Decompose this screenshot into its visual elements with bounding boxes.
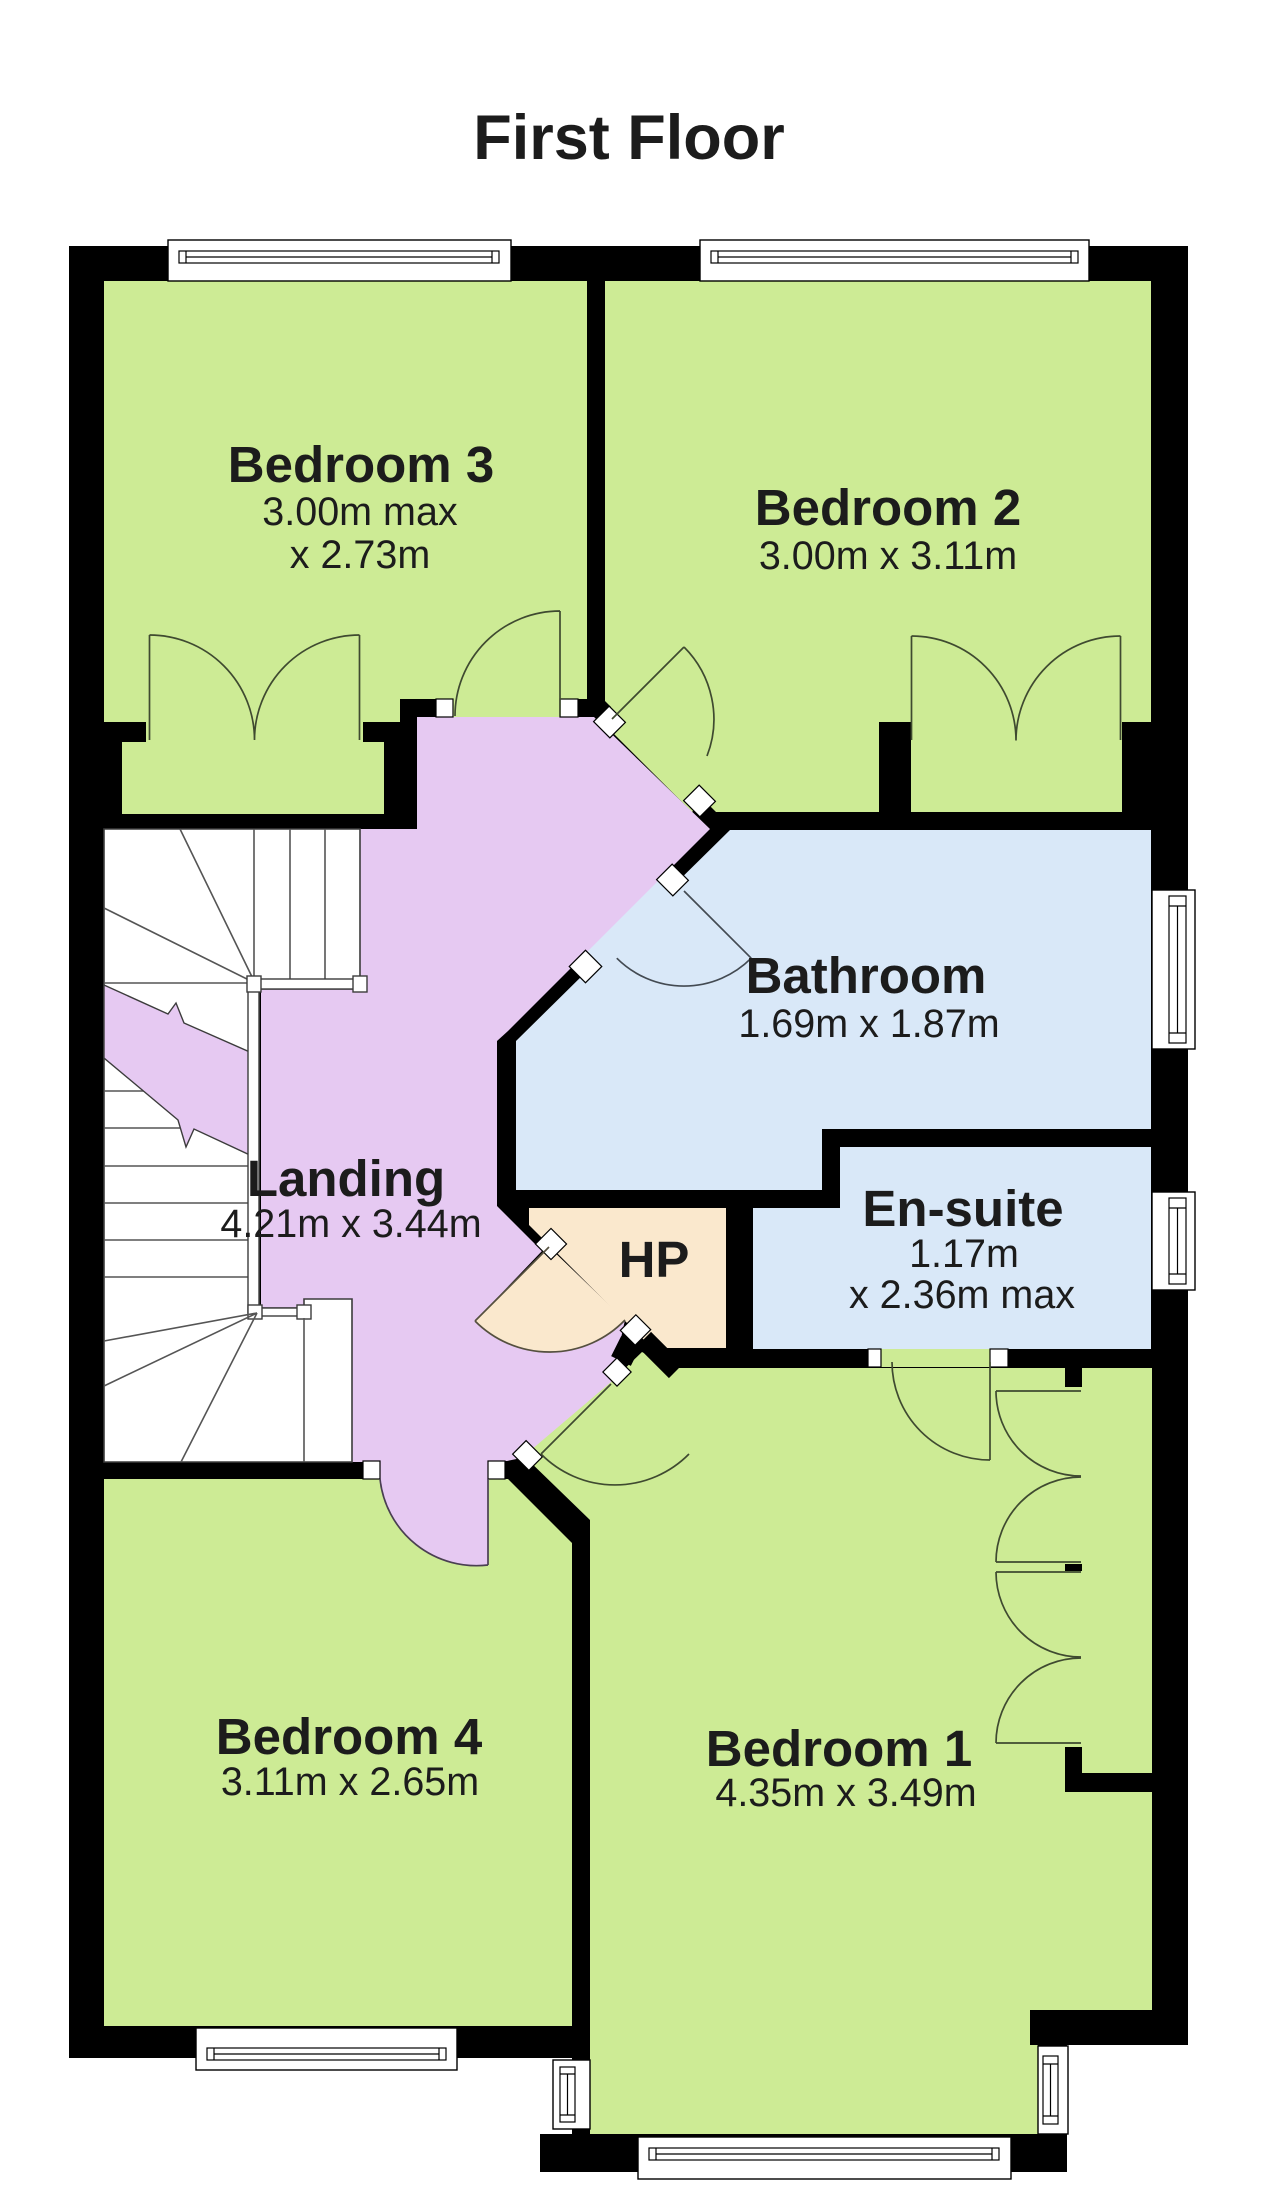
svg-text:Bedroom 3: Bedroom 3 bbox=[228, 436, 494, 493]
svg-text:4.35m x 3.49m: 4.35m x 3.49m bbox=[715, 1771, 976, 1815]
svg-text:Bathroom: Bathroom bbox=[746, 947, 987, 1004]
svg-text:First Floor: First Floor bbox=[473, 103, 785, 173]
svg-text:1.17m: 1.17m bbox=[909, 1232, 1019, 1276]
svg-text:1.69m x 1.87m: 1.69m x 1.87m bbox=[738, 1002, 999, 1046]
svg-text:4.21m x 3.44m: 4.21m x 3.44m bbox=[220, 1202, 481, 1246]
svg-text:Bedroom 1: Bedroom 1 bbox=[706, 1720, 972, 1777]
svg-text:3.11m x 2.65m: 3.11m x 2.65m bbox=[221, 1760, 479, 1804]
svg-text:3.00m max: 3.00m max bbox=[262, 490, 458, 534]
svg-text:x 2.73m: x 2.73m bbox=[290, 533, 431, 577]
svg-text:En-suite: En-suite bbox=[862, 1180, 1063, 1237]
svg-text:x 2.36m max: x 2.36m max bbox=[849, 1273, 1075, 1317]
svg-text:Landing: Landing bbox=[247, 1150, 445, 1207]
svg-text:Bedroom 4: Bedroom 4 bbox=[216, 1708, 483, 1765]
svg-text:3.00m x 3.11m: 3.00m x 3.11m bbox=[759, 534, 1017, 578]
svg-text:HP: HP bbox=[619, 1231, 690, 1288]
svg-text:Bedroom 2: Bedroom 2 bbox=[755, 479, 1021, 536]
